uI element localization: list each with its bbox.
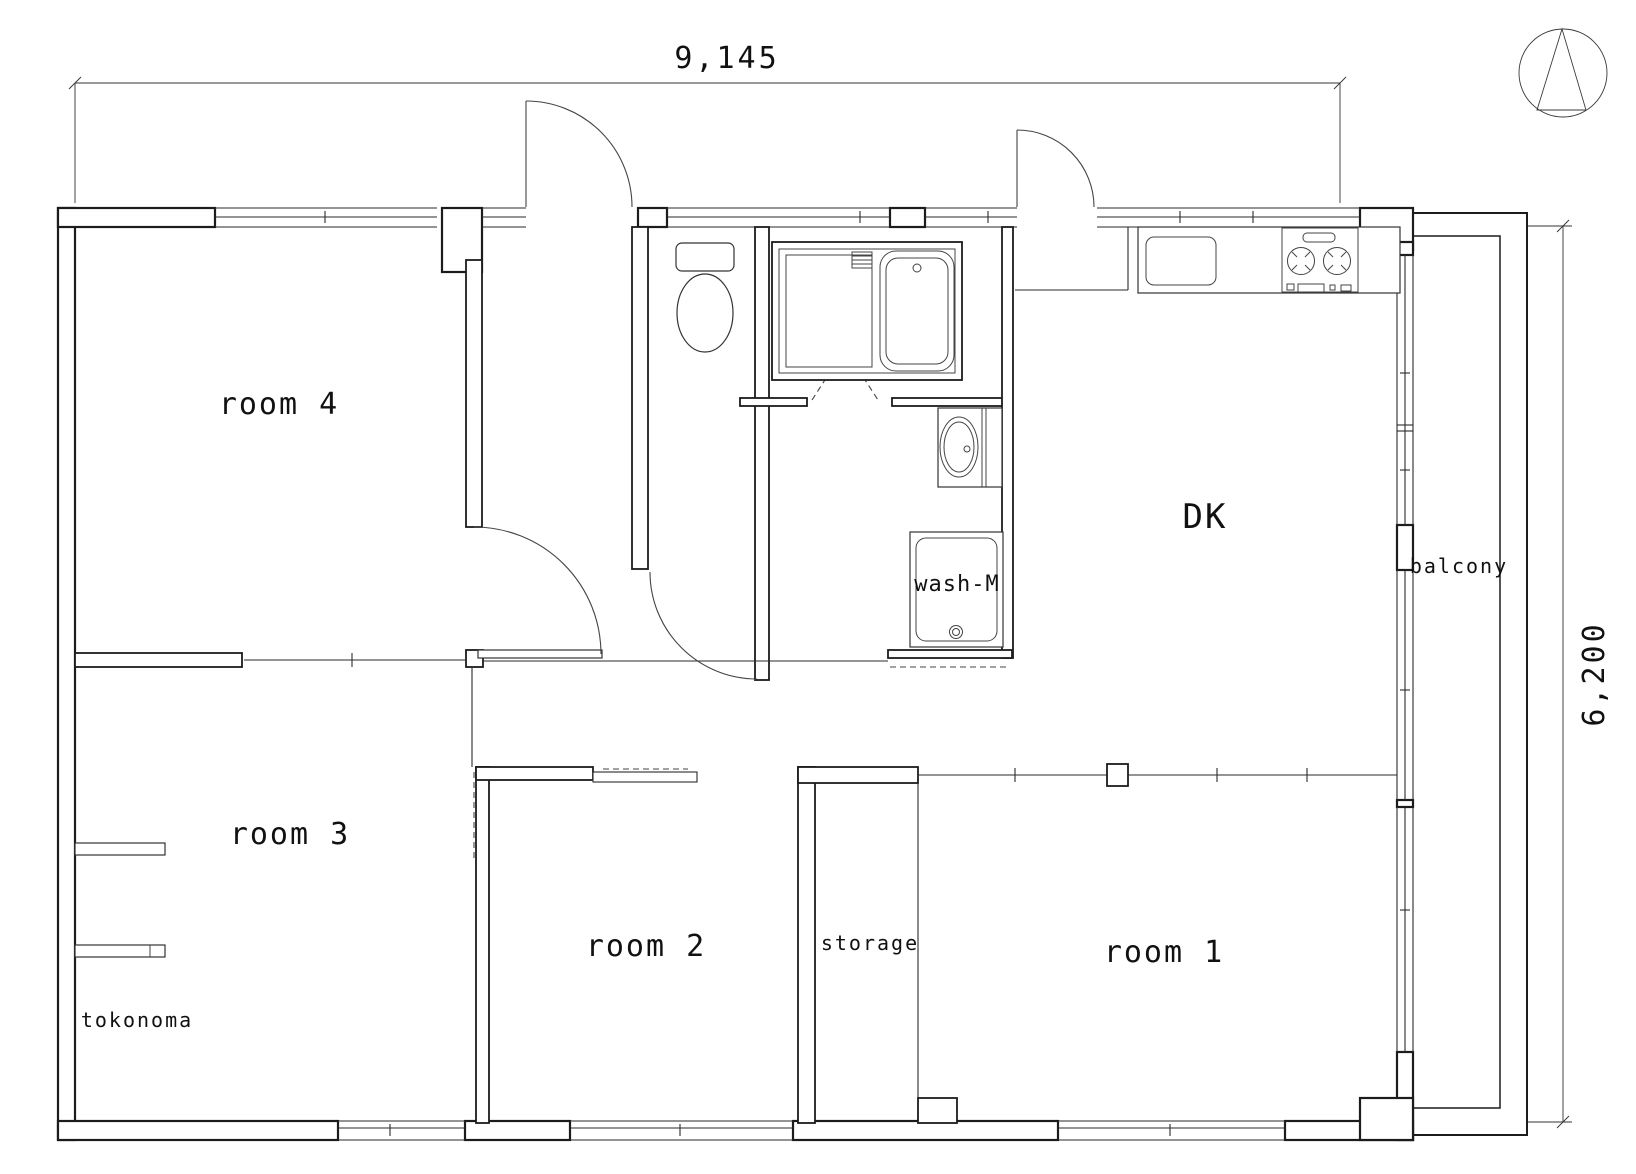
dk-label: DK	[1183, 497, 1228, 537]
entrance-door	[526, 101, 632, 207]
room1-label: room 1	[1104, 935, 1224, 970]
room2-label: room 2	[586, 929, 706, 964]
balcony-parapet	[1413, 213, 1527, 1135]
window-dk-balcony	[1397, 255, 1413, 525]
kitchen-door	[1017, 130, 1094, 207]
storage-label: storage	[821, 931, 919, 955]
north-arrow-icon	[1519, 29, 1607, 117]
tokonoma-shelves	[75, 843, 165, 957]
wash-basin	[938, 408, 1002, 487]
toilet-door	[650, 572, 757, 679]
window-hall-top	[482, 208, 526, 227]
right-dimension: 6,200	[1527, 220, 1612, 1128]
room-labels: room 4 room 3 room 2 room 1 DK storage t…	[81, 387, 1508, 1032]
room3-label: room 3	[230, 817, 350, 852]
window-toilet-bath-top	[667, 208, 890, 227]
dimension-height-label: 6,200	[1577, 621, 1612, 726]
exterior-walls	[58, 208, 1413, 1140]
dashed-tracks	[474, 667, 1010, 858]
floor-plan-canvas: 9,145 6,200	[0, 0, 1636, 1174]
dimension-width-label: 9,145	[674, 41, 779, 76]
window-room2-bottom	[570, 1121, 793, 1140]
window-room1-balcony	[1397, 807, 1413, 1052]
top-dimension: 9,145	[69, 41, 1346, 203]
interior-walls	[75, 227, 1397, 1123]
washing-machine-pan: wash-M	[910, 532, 1003, 647]
window-wash-top	[925, 208, 1017, 227]
toilet-fixture	[676, 243, 734, 352]
window-kitchen-top	[1097, 208, 1360, 227]
tokonoma-label: tokonoma	[81, 1008, 193, 1032]
floor-plan-page: 9,145 6,200	[0, 0, 1636, 1174]
window-room4-top	[215, 208, 437, 227]
room4-door	[474, 527, 602, 658]
kitchen-counter	[1138, 227, 1400, 293]
room1-partition-track	[918, 764, 1397, 786]
washing-machine-label: wash-M	[914, 572, 999, 597]
balcony-label: balcony	[1410, 554, 1508, 578]
window-room3-bottom	[338, 1121, 465, 1140]
room4-label: room 4	[219, 387, 339, 422]
window-balcony-mid	[1397, 570, 1413, 800]
bath-unit	[772, 242, 962, 380]
window-room1-bottom	[1058, 1121, 1285, 1140]
